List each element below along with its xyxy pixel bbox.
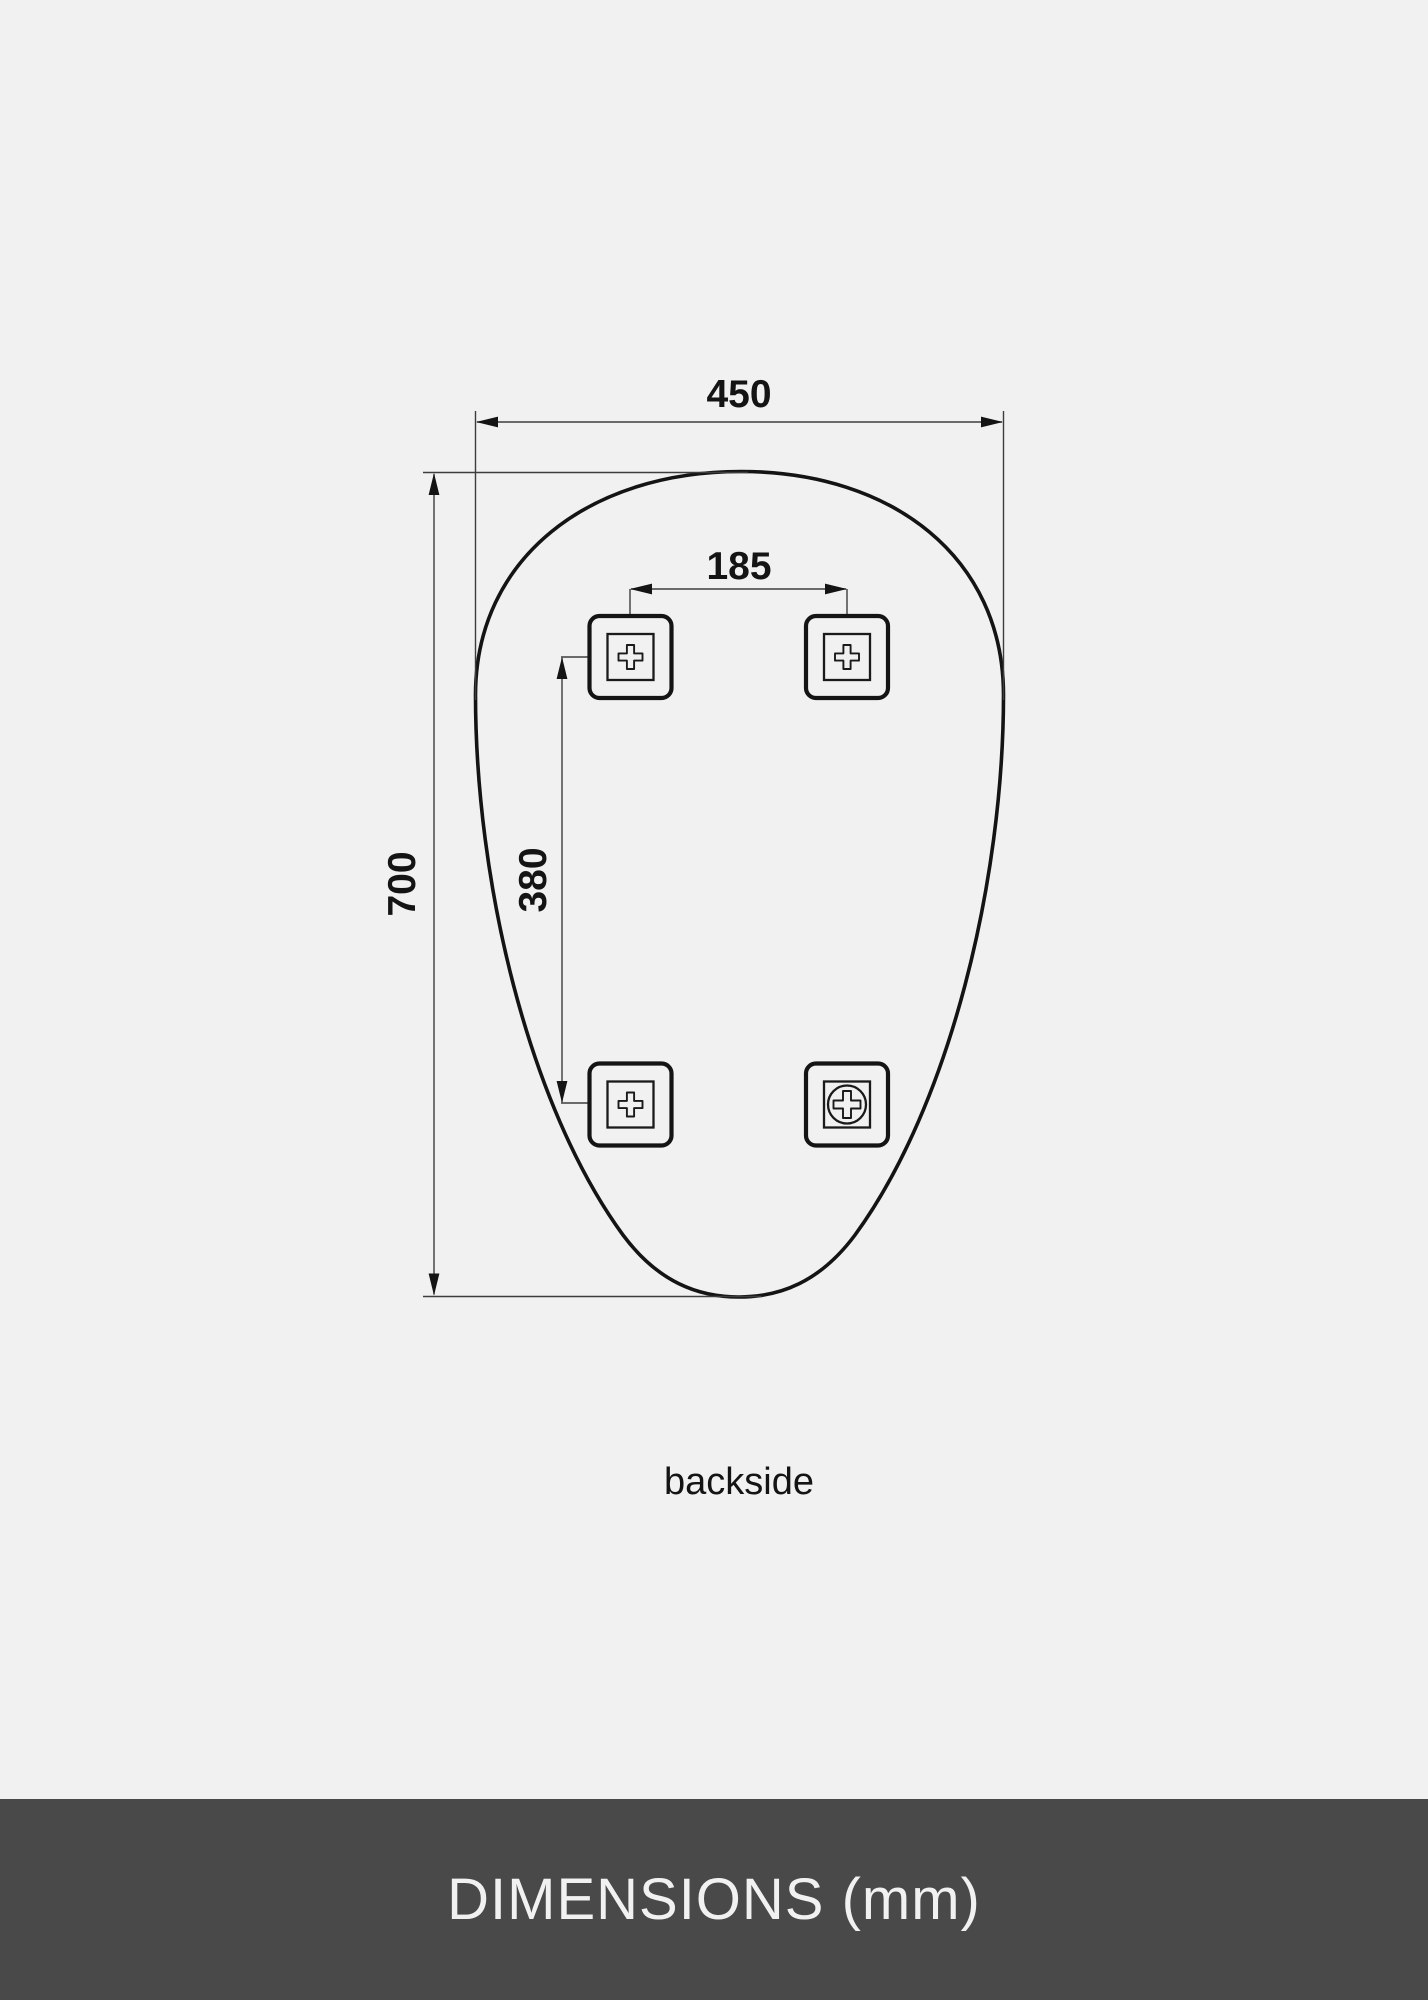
dimension-height: 700 bbox=[381, 473, 762, 1297]
footer-bar: DIMENSIONS (mm) bbox=[0, 1799, 1428, 2000]
bracket-inner-square bbox=[608, 1082, 654, 1128]
dimension-value-width: 450 bbox=[706, 373, 771, 416]
arrow-right-icon bbox=[825, 584, 847, 595]
dimension-value-height: 700 bbox=[381, 851, 424, 916]
dimension-value-bracket-horizontal: 185 bbox=[706, 545, 771, 588]
drawing-caption: backside bbox=[664, 1461, 814, 1503]
dimension-value-bracket-vertical: 380 bbox=[512, 847, 555, 912]
mounting-bracket-bottom-right bbox=[806, 1064, 888, 1146]
screw-cross-icon bbox=[834, 1091, 861, 1118]
bracket-outer-square bbox=[590, 1064, 672, 1146]
dimension-width: 450 bbox=[476, 373, 1004, 700]
bracket-outer-square bbox=[806, 1064, 888, 1146]
cross-mark-icon bbox=[619, 1093, 643, 1117]
screw-icon bbox=[828, 1086, 866, 1124]
arrow-left-icon bbox=[630, 584, 652, 595]
bracket-outer-square bbox=[806, 616, 888, 698]
bracket-inner-square bbox=[824, 1082, 870, 1128]
arrow-down-icon bbox=[429, 1274, 440, 1296]
dimension-bracket-spacing-horizontal: 185 bbox=[630, 545, 847, 614]
bracket-outer-square bbox=[590, 616, 672, 698]
dimension-bracket-spacing-vertical: 380 bbox=[512, 657, 588, 1103]
arrow-up-icon bbox=[429, 473, 440, 495]
bracket-inner-square bbox=[608, 634, 654, 680]
arrow-right-icon bbox=[981, 417, 1003, 428]
arrow-down-icon bbox=[557, 1081, 568, 1103]
cross-mark-icon bbox=[619, 645, 643, 669]
footer-title: DIMENSIONS (mm) bbox=[447, 1866, 981, 1933]
cross-mark-icon bbox=[835, 645, 859, 669]
arrow-left-icon bbox=[476, 417, 498, 428]
mounting-bracket-top-right bbox=[806, 616, 888, 698]
technical-drawing: 450 700 185 380 bbox=[0, 0, 1428, 2000]
mounting-bracket-top-left bbox=[590, 616, 672, 698]
dimension-diagram-page: 450 700 185 380 bbox=[0, 0, 1428, 2000]
bracket-inner-square bbox=[824, 634, 870, 680]
mounting-bracket-bottom-left bbox=[590, 1064, 672, 1146]
arrow-up-icon bbox=[557, 657, 568, 679]
